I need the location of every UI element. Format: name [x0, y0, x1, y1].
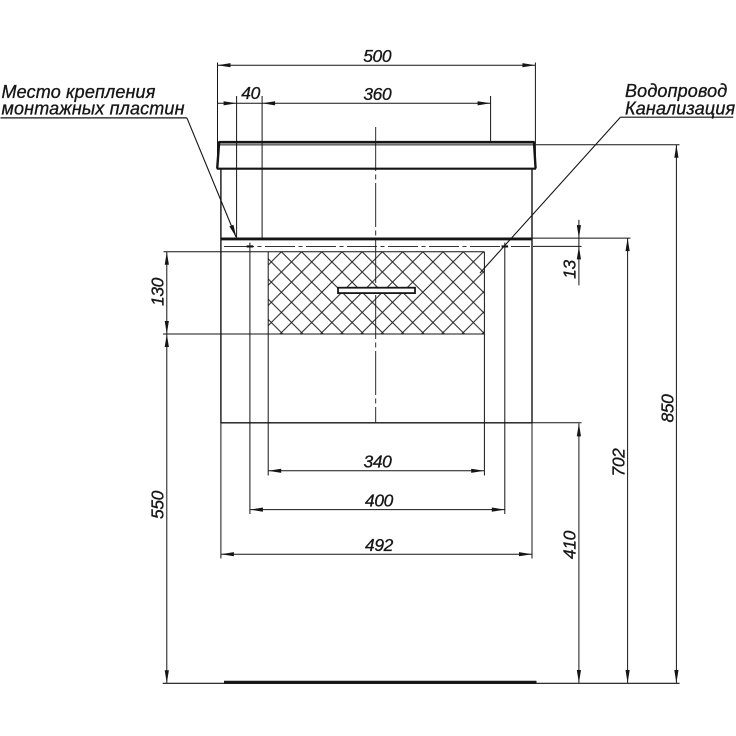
- svg-text:монтажных пластин: монтажных пластин: [2, 99, 185, 119]
- svg-text:410: 410: [559, 530, 579, 559]
- svg-text:492: 492: [365, 535, 394, 555]
- svg-text:400: 400: [365, 490, 394, 510]
- svg-text:702: 702: [608, 448, 628, 477]
- svg-text:40: 40: [241, 83, 260, 103]
- svg-text:340: 340: [364, 451, 393, 471]
- svg-text:13: 13: [559, 260, 579, 279]
- svg-text:130: 130: [147, 277, 167, 306]
- svg-text:500: 500: [363, 46, 392, 66]
- svg-text:850: 850: [657, 394, 677, 423]
- svg-text:Канализация: Канализация: [625, 99, 735, 119]
- svg-text:360: 360: [363, 84, 392, 104]
- svg-text:550: 550: [147, 490, 167, 519]
